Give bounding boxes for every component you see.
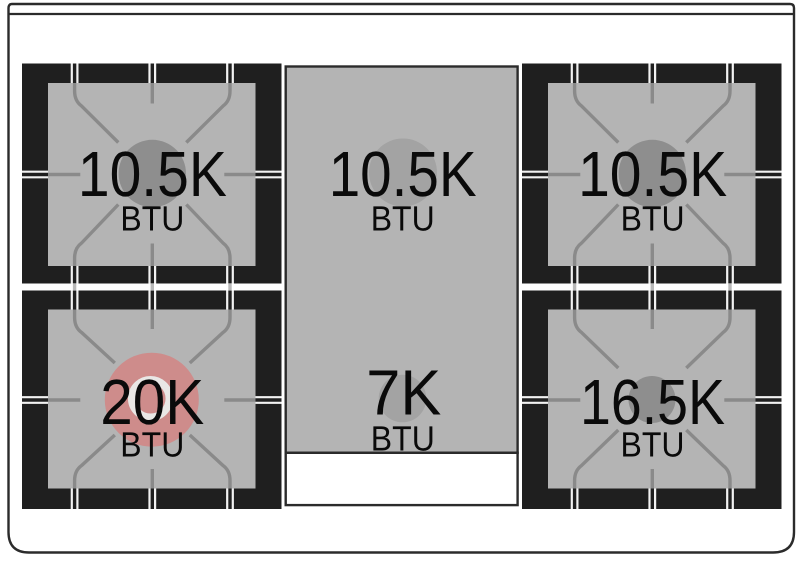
svg-text:BTU: BTU	[371, 420, 435, 459]
svg-text:7K: 7K	[366, 357, 441, 429]
svg-text:BTU: BTU	[621, 200, 685, 239]
svg-text:BTU: BTU	[621, 426, 685, 465]
svg-text:BTU: BTU	[371, 200, 435, 239]
svg-text:BTU: BTU	[120, 426, 184, 465]
svg-text:BTU: BTU	[120, 200, 184, 239]
